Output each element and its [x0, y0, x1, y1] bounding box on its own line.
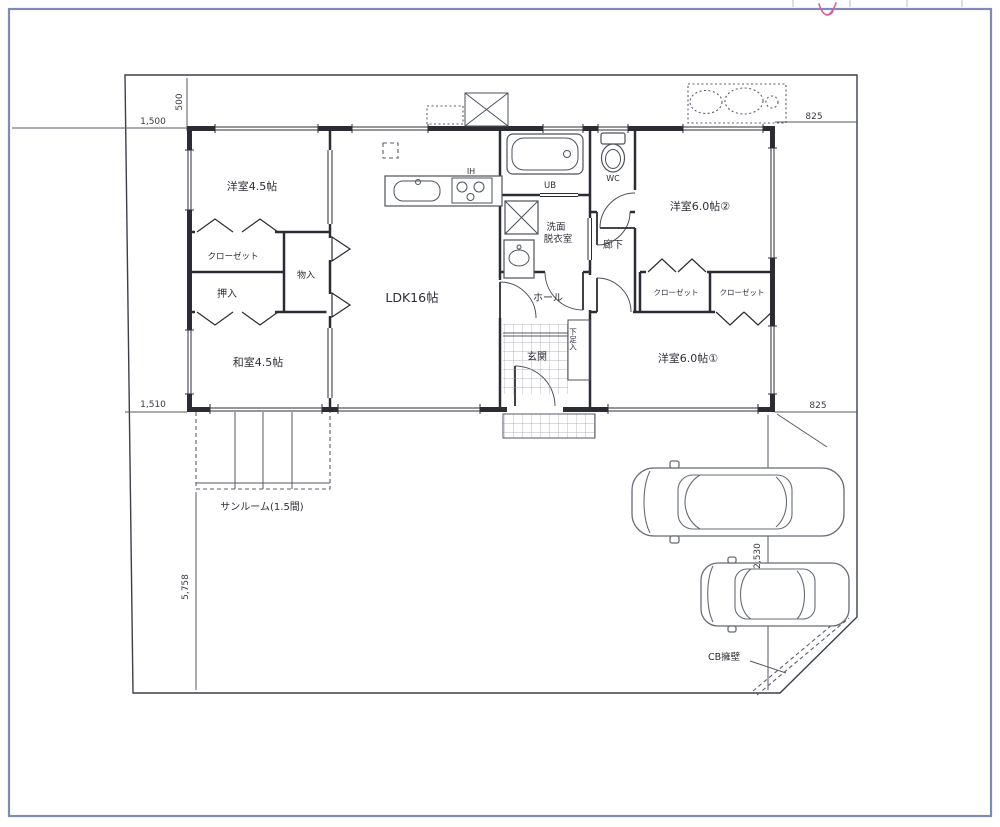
room-label-hall: ホール	[533, 292, 563, 304]
floorplan-page: 洋室4.5帖 クローゼット 押入 物入 和室4.5帖 サンルーム(1.5間) L…	[0, 0, 1000, 827]
floorplan-drawing: 洋室4.5帖 クローゼット 押入 物入 和室4.5帖 サンルーム(1.5間) L…	[0, 0, 1000, 827]
room-label-western1: 洋室4.5帖	[227, 179, 278, 193]
entrance-area	[503, 320, 595, 438]
bay-vent	[427, 93, 508, 126]
car-2	[701, 557, 849, 632]
dim-5758: 5,758	[181, 574, 191, 600]
room-label-shoe-storage: 下足入	[568, 328, 577, 351]
vanity-sink	[504, 240, 534, 278]
room-label-corridor: 廊下	[603, 238, 623, 251]
dim-825-top: 825	[805, 112, 822, 122]
dim-2530: 2,530	[753, 543, 763, 569]
room-label-closet-w2b: クローゼット	[720, 287, 765, 297]
room-label-closet-w2a: クローゼット	[654, 287, 699, 297]
interior-walls	[187, 126, 775, 412]
windows	[185, 124, 777, 414]
porch	[503, 414, 595, 438]
label-ih: IH	[467, 167, 475, 176]
room-label-ldk: LDK16帖	[385, 290, 438, 305]
room-label-western3: 洋室6.0帖①	[658, 351, 718, 365]
dim-1500: 1,500	[140, 117, 166, 127]
label-ub: UB	[544, 181, 556, 191]
room-label-japanese: 和室4.5帖	[233, 355, 284, 369]
room-label-oshiire: 押入	[217, 287, 237, 300]
room-label-western2: 洋室6.0帖②	[670, 199, 730, 213]
annotation-retaining-wall: CB擁壁	[708, 651, 741, 663]
dim-825-bottom: 825	[809, 401, 826, 411]
room-label-sunroom: サンルーム(1.5間)	[220, 501, 304, 513]
refrigerator-space	[383, 143, 398, 158]
room-label-washroom-1: 洗面	[546, 221, 565, 233]
dim-500: 500	[175, 93, 185, 110]
exterior-walls	[187, 126, 775, 412]
toilet	[601, 133, 625, 172]
room-label-monoire: 物入	[297, 269, 315, 281]
bathtub	[507, 134, 583, 174]
kitchen-counter	[383, 143, 502, 206]
ruler-ticks	[793, 0, 962, 7]
label-wc: WC	[606, 174, 620, 183]
room-label-entrance: 玄関	[527, 350, 547, 363]
room-label-washroom-2: 脱衣室	[544, 233, 573, 245]
car-1	[632, 461, 844, 543]
dim-1510: 1,510	[140, 400, 166, 410]
washing-machine	[505, 201, 538, 234]
planter	[688, 84, 786, 123]
room-label-closet-w1: クローゼット	[207, 251, 258, 262]
sunroom	[196, 412, 330, 489]
